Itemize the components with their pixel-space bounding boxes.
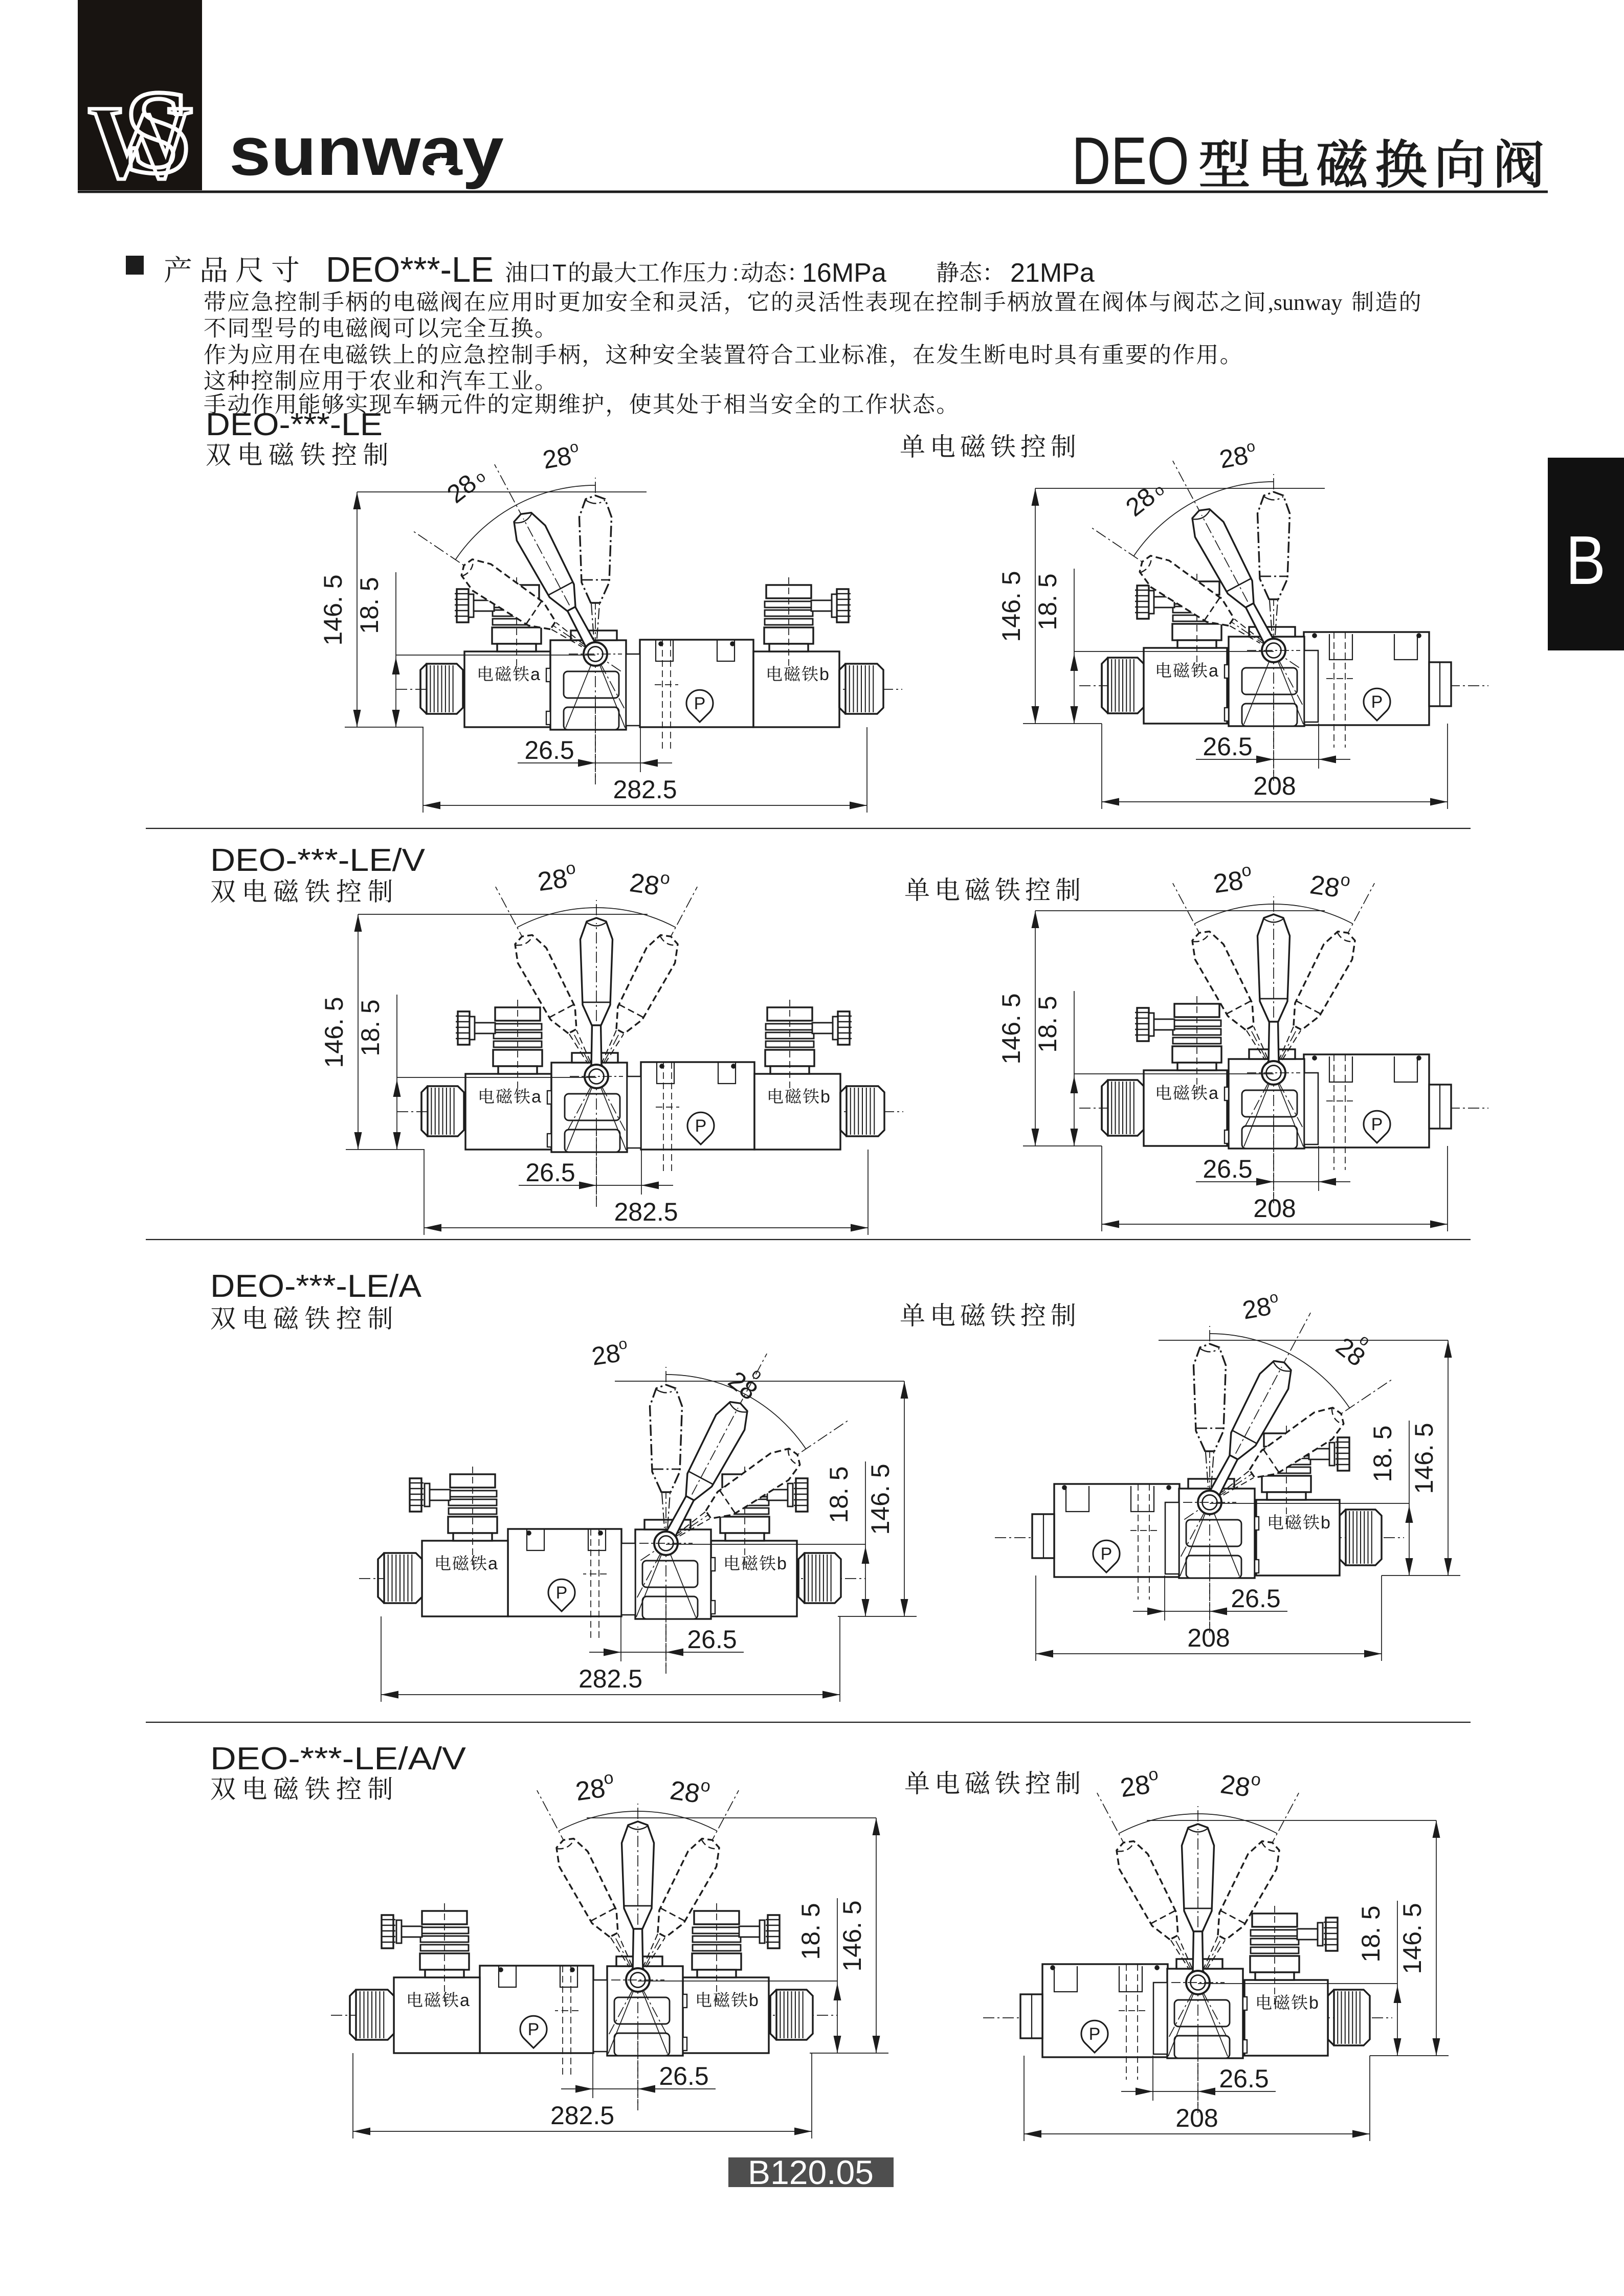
svg-text:P: P (528, 2020, 540, 2039)
svg-text:146. 5: 146. 5 (320, 997, 348, 1068)
svg-text:18. 5: 18. 5 (825, 1466, 853, 1523)
svg-text:146. 5: 146. 5 (319, 574, 347, 645)
svg-text:282.5: 282.5 (614, 1198, 678, 1226)
svg-text:208: 208 (1253, 1194, 1296, 1223)
svg-text:P: P (1089, 2024, 1101, 2044)
svg-text:146. 5: 146. 5 (997, 571, 1026, 642)
svg-text:b: b (1321, 1513, 1330, 1533)
svg-text:DEO: DEO (1072, 123, 1189, 198)
svg-text:208: 208 (1187, 1624, 1230, 1652)
svg-text:28: 28 (1240, 1292, 1274, 1325)
svg-text:b: b (749, 1991, 759, 2010)
svg-text:28: 28 (590, 1339, 622, 1371)
svg-text:18. 5: 18. 5 (1368, 1425, 1397, 1482)
svg-text:DEO***-LE: DEO***-LE (326, 250, 494, 289)
svg-text:a: a (1209, 1084, 1218, 1103)
svg-text:21MPa: 21MPa (1010, 258, 1095, 288)
svg-text:P: P (1101, 1544, 1113, 1564)
svg-text:282.5: 282.5 (579, 1664, 642, 1693)
svg-text:b: b (819, 665, 829, 684)
svg-text:146. 5: 146. 5 (838, 1900, 866, 1971)
svg-text:28: 28 (541, 441, 574, 475)
svg-text::: : (732, 260, 739, 286)
svg-text:26.5: 26.5 (1219, 2064, 1269, 2093)
svg-text:DEO-***-LE/V: DEO-***-LE/V (210, 843, 426, 878)
svg-text:28: 28 (1217, 441, 1251, 474)
svg-text:16MPa: 16MPa (802, 258, 886, 288)
svg-text:P: P (695, 1116, 707, 1136)
svg-text:P: P (1371, 692, 1383, 712)
svg-text:a: a (460, 1991, 470, 2010)
svg-text:a: a (531, 1087, 541, 1107)
svg-text:208: 208 (1253, 772, 1296, 800)
svg-text:b: b (1309, 1993, 1319, 2013)
svg-text:18. 5: 18. 5 (355, 577, 384, 634)
svg-text:146. 5: 146. 5 (866, 1464, 895, 1535)
svg-text:208: 208 (1175, 2104, 1218, 2132)
svg-text:26.5: 26.5 (1203, 732, 1252, 761)
svg-text:B120.05: B120.05 (748, 2153, 874, 2191)
svg-text:26.5: 26.5 (1203, 1155, 1252, 1183)
svg-text:DEO-***-LE/A/V: DEO-***-LE/A/V (210, 1741, 466, 1776)
svg-text:18. 5: 18. 5 (1356, 1905, 1385, 1962)
svg-text:,sunway: ,sunway (1268, 290, 1342, 315)
svg-text:P: P (1371, 1115, 1383, 1134)
svg-text:b: b (777, 1554, 787, 1573)
svg-text:T: T (552, 260, 567, 286)
svg-text:26.5: 26.5 (525, 1158, 575, 1187)
svg-text:a: a (1209, 661, 1218, 681)
svg-text:P: P (694, 694, 706, 713)
svg-text:b: b (820, 1087, 830, 1107)
svg-text:26.5: 26.5 (687, 1625, 737, 1654)
svg-text:18. 5: 18. 5 (1033, 573, 1062, 630)
svg-text:282.5: 282.5 (613, 775, 677, 804)
svg-text:a: a (488, 1554, 498, 1573)
svg-text:DEO-***-LE/A: DEO-***-LE/A (210, 1269, 422, 1304)
svg-text:18. 5: 18. 5 (796, 1903, 825, 1960)
svg-text:18. 5: 18. 5 (356, 999, 385, 1056)
svg-text:18. 5: 18. 5 (1033, 996, 1062, 1052)
svg-text:146. 5: 146. 5 (1410, 1423, 1438, 1494)
svg-text:26.5: 26.5 (659, 2062, 708, 2090)
svg-text:DEO-***-LE: DEO-***-LE (206, 407, 383, 442)
svg-text:a: a (530, 665, 540, 684)
svg-text:B: B (1566, 522, 1606, 599)
svg-text:26.5: 26.5 (1231, 1584, 1280, 1613)
svg-text:sunway: sunway (229, 112, 504, 190)
svg-text:26.5: 26.5 (524, 736, 574, 764)
svg-text:282.5: 282.5 (550, 2101, 614, 2130)
svg-text:146. 5: 146. 5 (997, 993, 1026, 1064)
svg-text:146. 5: 146. 5 (1398, 1903, 1427, 1974)
svg-text:P: P (556, 1583, 568, 1603)
svg-text:S: S (124, 65, 191, 198)
